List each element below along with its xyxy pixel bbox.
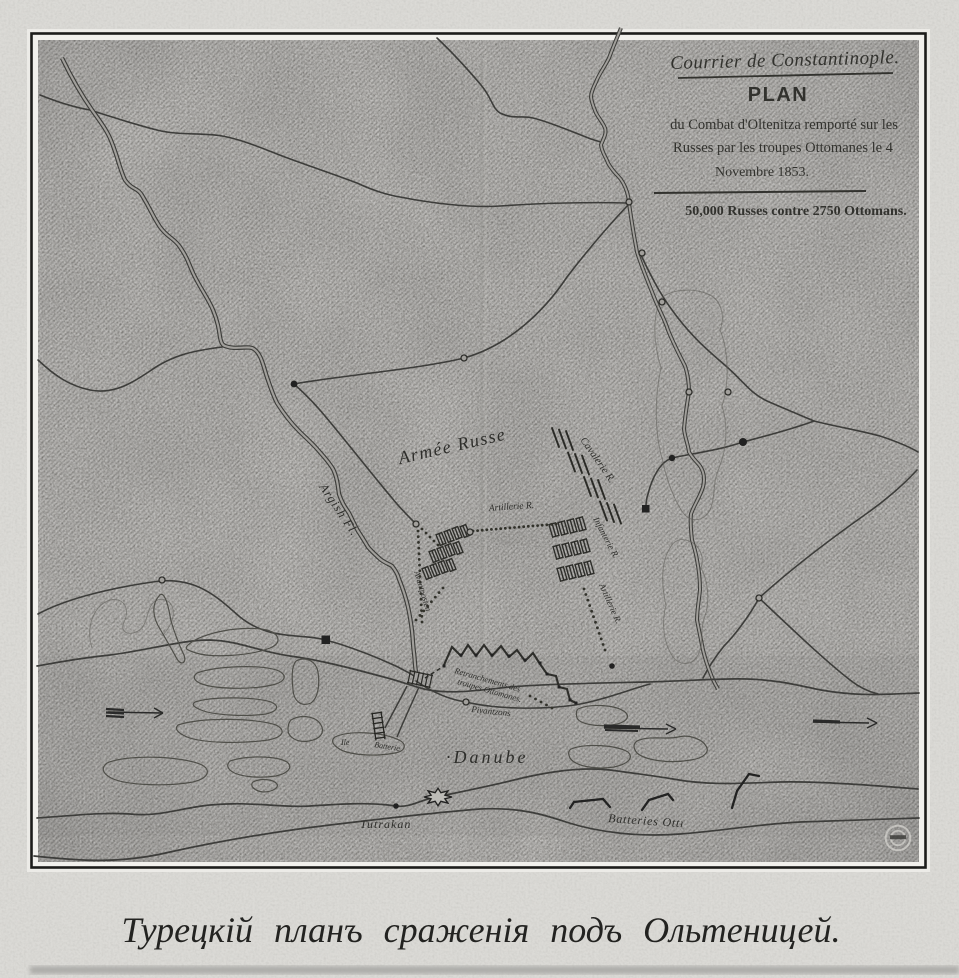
svg-text:·Danube: ·Danube — [446, 747, 529, 767]
svg-text:Турецкій планъ сраженія подъ О: Турецкій планъ сраженія подъ Ольтеницей. — [122, 910, 841, 950]
svg-text:du Combat d'Oltenitza remporté: du Combat d'Oltenitza remporté sur les — [670, 117, 898, 133]
svg-text:PLAN: PLAN — [748, 84, 808, 106]
svg-text:Novembre 1853.: Novembre 1853. — [715, 165, 809, 180]
svg-text:Ile: Ile — [340, 738, 350, 747]
svg-text:Russes par les troupes Ottoman: Russes par les troupes Ottomanes le 4 — [673, 140, 894, 156]
svg-text:50,000 Russes contre 2750 Ott: 50,000 Russes contre 2750 Ottomans. — [685, 204, 906, 219]
svg-text:Tutrakan: Tutrakan — [360, 817, 411, 831]
